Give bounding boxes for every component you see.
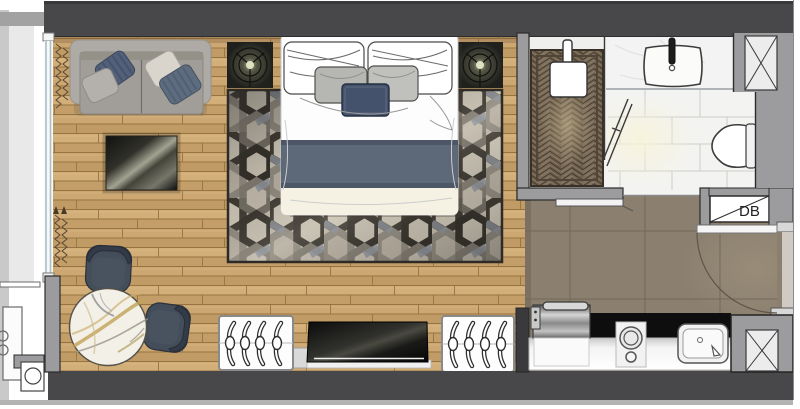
svg-text:DB: DB bbox=[739, 203, 760, 220]
